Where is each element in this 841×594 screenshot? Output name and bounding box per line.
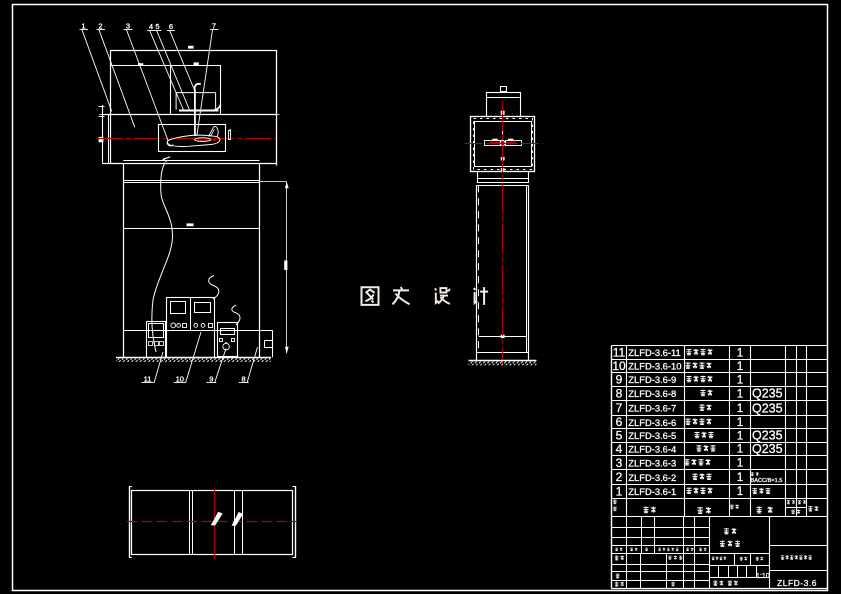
- svg-text:ZLFD-3.6-3: ZLFD-3.6-3: [628, 457, 676, 468]
- svg-text:3: 3: [616, 456, 623, 470]
- svg-text:ZLFD-3.6-10: ZLFD-3.6-10: [628, 361, 681, 372]
- svg-text:10: 10: [612, 359, 626, 373]
- svg-text:11: 11: [613, 346, 626, 360]
- svg-text:ZLFD-3.6-11: ZLFD-3.6-11: [628, 347, 680, 358]
- svg-text:ZLFD-3.6-5: ZLFD-3.6-5: [628, 430, 676, 441]
- svg-text:1: 1: [737, 388, 743, 400]
- svg-text:1: 1: [737, 486, 743, 498]
- svg-text:ZLFD-3.6-4: ZLFD-3.6-4: [628, 443, 676, 454]
- svg-text:6: 6: [169, 22, 173, 31]
- svg-text:2: 2: [616, 470, 623, 484]
- svg-text:ZLFD-3.6-6: ZLFD-3.6-6: [628, 417, 676, 428]
- svg-text:1: 1: [737, 347, 743, 359]
- svg-text:Q235: Q235: [752, 442, 783, 456]
- svg-text:4: 4: [149, 22, 153, 31]
- svg-text:1: 1: [737, 403, 743, 415]
- svg-text:ZLFD-3.6-7: ZLFD-3.6-7: [628, 403, 676, 414]
- svg-text:7: 7: [616, 401, 623, 415]
- svg-text:1:10: 1:10: [756, 573, 770, 580]
- svg-text:BACC/B=1.5: BACC/B=1.5: [751, 478, 783, 484]
- svg-text:5: 5: [155, 22, 159, 31]
- svg-text:Q235: Q235: [752, 429, 783, 443]
- svg-text:1: 1: [737, 430, 743, 442]
- svg-text:4: 4: [616, 442, 623, 456]
- svg-text:8: 8: [616, 386, 623, 400]
- svg-text:9: 9: [616, 373, 623, 387]
- svg-text:ZLFD-3.6-2: ZLFD-3.6-2: [628, 472, 676, 483]
- svg-text:1: 1: [616, 484, 623, 498]
- svg-text:5: 5: [616, 429, 623, 443]
- svg-text:1: 1: [737, 458, 743, 470]
- svg-text:1: 1: [737, 374, 743, 386]
- svg-text:1: 1: [737, 361, 743, 373]
- svg-text:ZLFD-3.6: ZLFD-3.6: [777, 578, 817, 588]
- svg-text:Q235: Q235: [752, 387, 783, 401]
- svg-text:6: 6: [616, 415, 623, 429]
- svg-text:ZLFD-3.6-9: ZLFD-3.6-9: [628, 374, 676, 385]
- svg-text:ZLFD-3.6-8: ZLFD-3.6-8: [628, 388, 676, 399]
- svg-text:1: 1: [737, 472, 743, 484]
- svg-text:1: 1: [737, 417, 743, 429]
- svg-text:ZLFD-3.6-1: ZLFD-3.6-1: [628, 486, 676, 497]
- svg-text:1: 1: [737, 444, 743, 456]
- svg-text:Q235: Q235: [752, 401, 783, 415]
